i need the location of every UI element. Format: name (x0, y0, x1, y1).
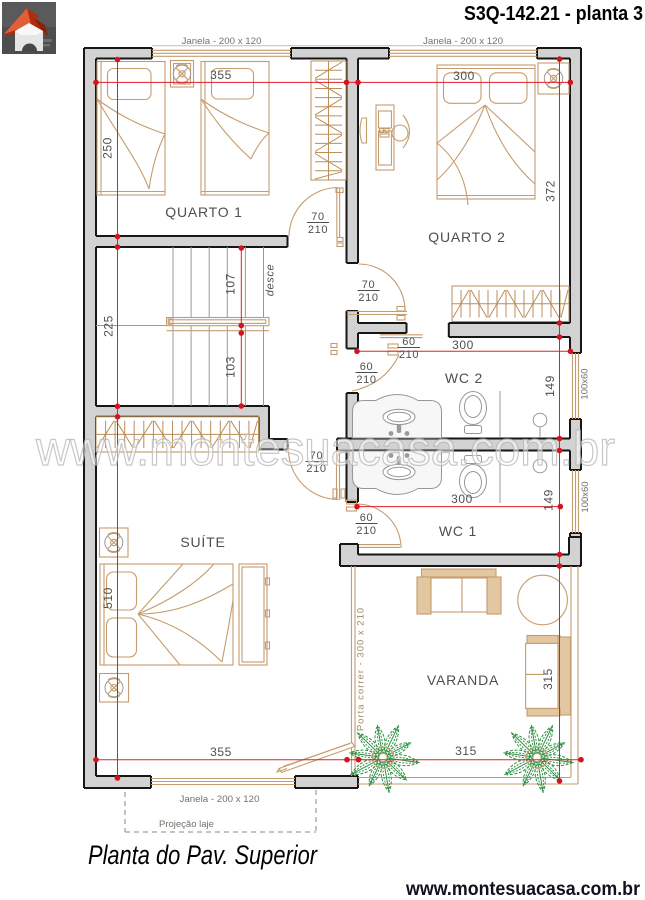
svg-text:Planta do Pav. Superior: Planta do Pav. Superior (88, 840, 318, 870)
svg-text:107: 107 (224, 273, 238, 295)
svg-text:300: 300 (452, 338, 474, 352)
svg-text:210: 210 (308, 224, 328, 236)
svg-text:210: 210 (399, 349, 419, 361)
svg-text:355: 355 (210, 68, 232, 82)
svg-text:300: 300 (453, 69, 475, 83)
svg-text:100x60: 100x60 (580, 368, 591, 399)
svg-text:Porta correr - 300 x 210: Porta correr - 300 x 210 (356, 607, 367, 731)
svg-text:210: 210 (356, 525, 376, 537)
svg-text:510: 510 (101, 587, 115, 609)
svg-text:70: 70 (362, 279, 375, 291)
svg-text:desce: desce (265, 264, 277, 296)
svg-text:QUARTO 1: QUARTO 1 (165, 204, 242, 220)
svg-text:VARANDA: VARANDA (427, 672, 499, 688)
svg-text:www.montesuacasa.com.br: www.montesuacasa.com.br (35, 423, 615, 476)
svg-text:149: 149 (543, 375, 557, 397)
svg-text:Janela - 200 x 120: Janela - 200 x 120 (423, 36, 503, 47)
svg-text:210: 210 (356, 374, 376, 386)
svg-text:SUÍTE: SUÍTE (180, 534, 225, 550)
svg-text:www.montesuacasa.com.br: www.montesuacasa.com.br (405, 878, 640, 900)
svg-text:QUARTO 2: QUARTO 2 (428, 229, 505, 245)
svg-text:Janela - 200 x 120: Janela - 200 x 120 (180, 794, 260, 805)
svg-text:100x60: 100x60 (580, 481, 591, 512)
svg-text:315: 315 (541, 668, 555, 690)
svg-text:S3Q-142.21 - planta 3: S3Q-142.21 - planta 3 (464, 3, 643, 25)
svg-text:355: 355 (210, 745, 232, 759)
svg-text:103: 103 (224, 356, 238, 378)
svg-text:70: 70 (311, 211, 324, 223)
svg-text:149: 149 (542, 489, 556, 511)
svg-text:Janela - 200 x 120: Janela - 200 x 120 (182, 36, 262, 47)
svg-text:WC 2: WC 2 (445, 370, 483, 386)
svg-text:60: 60 (360, 361, 373, 373)
svg-text:Projeção laje: Projeção laje (159, 819, 214, 830)
svg-text:210: 210 (358, 292, 378, 304)
svg-text:250: 250 (101, 137, 115, 159)
svg-text:300: 300 (451, 492, 473, 506)
svg-text:60: 60 (360, 512, 373, 524)
svg-text:315: 315 (455, 744, 477, 758)
svg-text:WC 1: WC 1 (439, 523, 477, 539)
svg-text:60: 60 (402, 336, 415, 348)
svg-text:372: 372 (544, 180, 558, 202)
svg-text:225: 225 (102, 315, 116, 337)
